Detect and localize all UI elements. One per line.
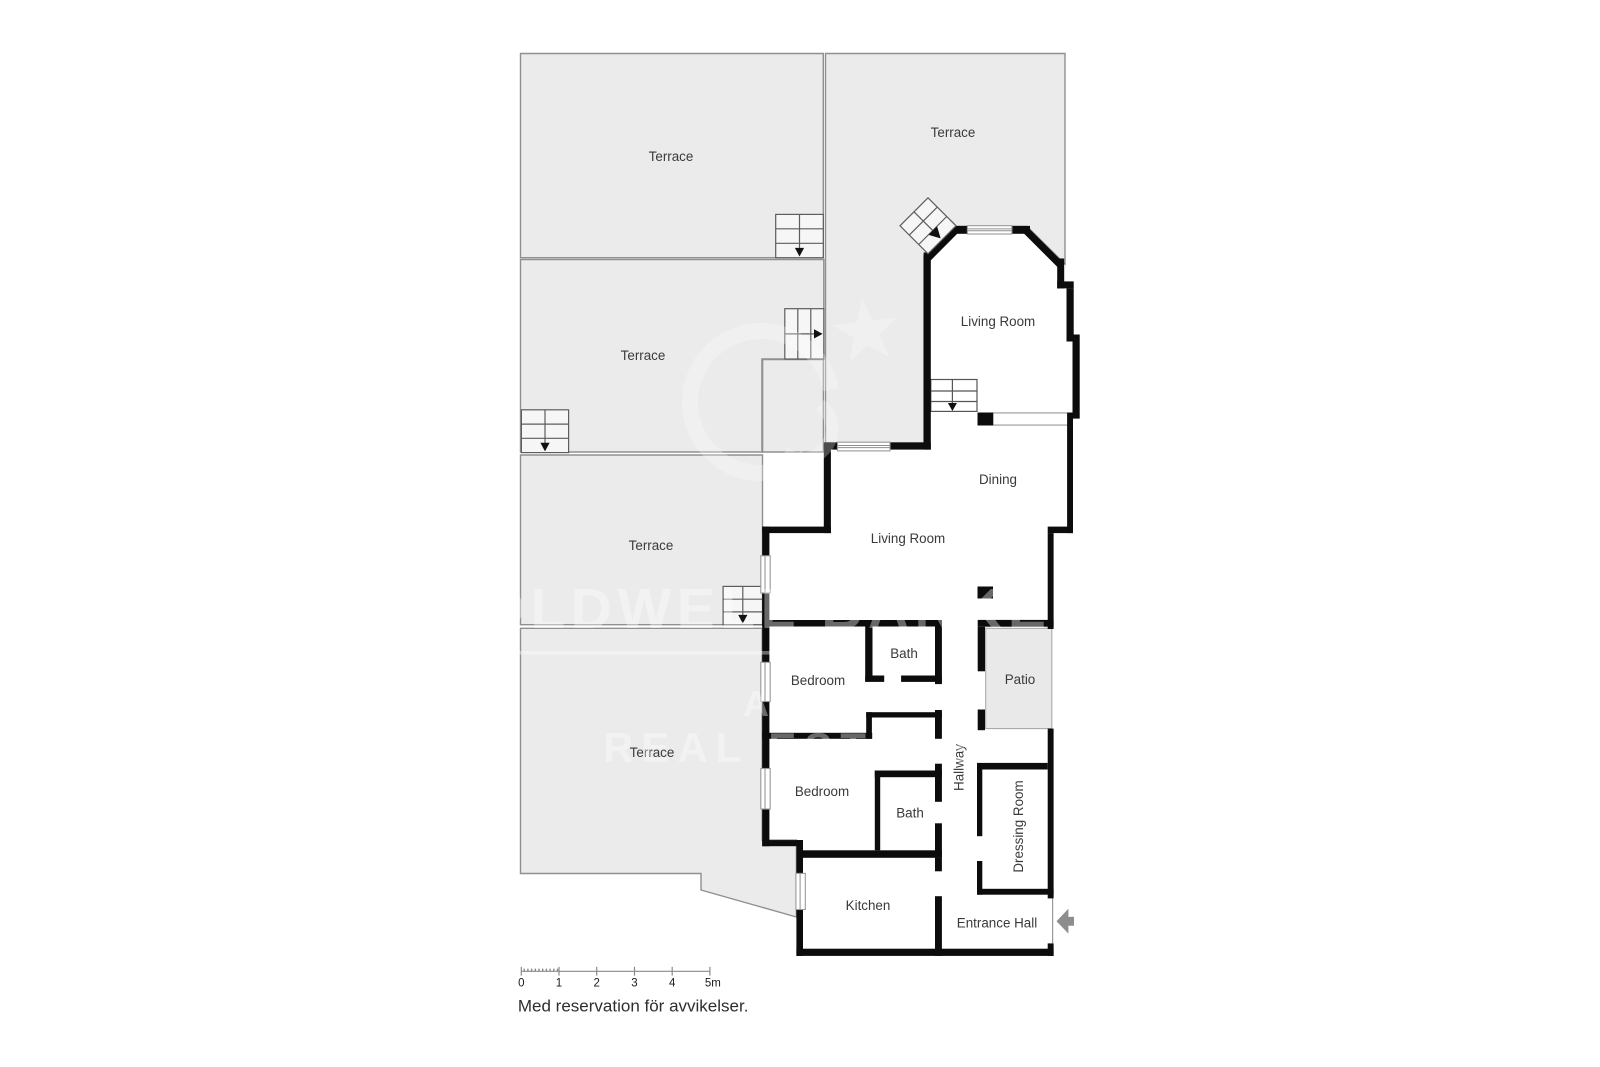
svg-text:5m: 5m [705,978,721,990]
svg-text:0: 0 [518,978,524,990]
svg-text:Living Room: Living Room [961,314,1035,329]
svg-text:Dining: Dining [979,472,1017,487]
svg-text:REAL ESTATE: REAL ESTATE [603,724,976,771]
svg-text:2: 2 [593,978,599,990]
svg-text:AND: AND [743,683,833,724]
svg-text:Terrace: Terrace [629,538,674,553]
svg-text:Patio: Patio [1005,672,1036,687]
svg-text:Terrace: Terrace [621,348,666,363]
svg-text:4: 4 [669,978,676,990]
svg-text:Living Room: Living Room [871,531,945,546]
svg-text:Terrace: Terrace [931,125,976,140]
svg-text:Terrace: Terrace [649,149,694,164]
svg-text:Med reservation för avvikelser: Med reservation för avvikelser. [518,997,749,1016]
svg-text:Bath: Bath [896,806,924,821]
svg-text:Bath: Bath [890,646,918,661]
svg-text:Bedroom: Bedroom [795,784,849,799]
svg-text:COLDWELL BANKER: COLDWELL BANKER [434,577,1098,641]
svg-text:Kitchen: Kitchen [846,898,891,913]
svg-text:Dressing Room: Dressing Room [1011,780,1026,872]
svg-text:3: 3 [631,978,637,990]
svg-text:Entrance Hall: Entrance Hall [957,916,1037,931]
svg-text:1: 1 [556,978,562,990]
